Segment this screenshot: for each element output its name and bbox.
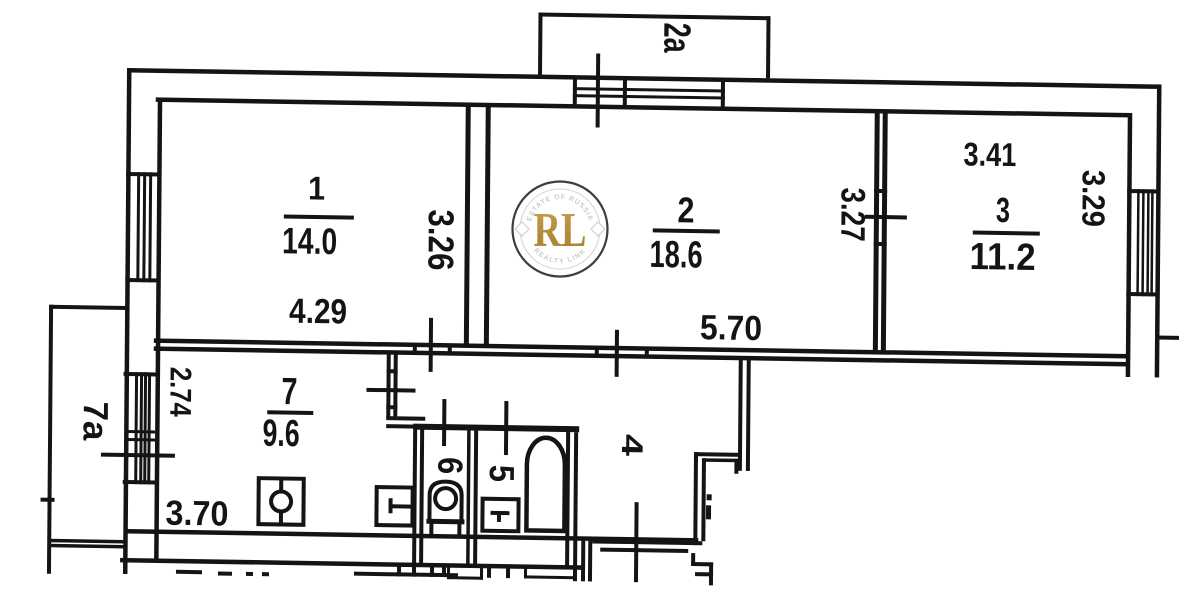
svg-text:3.41: 3.41: [963, 135, 1016, 173]
svg-text:2.74: 2.74: [163, 367, 196, 418]
svg-text:6: 6: [430, 457, 469, 475]
svg-text:9.6: 9.6: [262, 413, 299, 456]
svg-text:2: 2: [677, 189, 694, 230]
svg-text:5: 5: [482, 465, 521, 483]
svg-text:2a: 2a: [655, 22, 697, 53]
svg-text:5.70: 5.70: [700, 308, 762, 348]
svg-text:11.2: 11.2: [969, 236, 1035, 279]
svg-text:3.29: 3.29: [1075, 170, 1111, 228]
svg-text:3.70: 3.70: [165, 494, 228, 534]
svg-text:3.27: 3.27: [833, 187, 871, 242]
svg-text:RL: RL: [534, 202, 587, 257]
svg-text:1: 1: [308, 169, 325, 206]
svg-text:18.6: 18.6: [649, 234, 702, 277]
svg-text:7a: 7a: [76, 401, 115, 441]
svg-text:3: 3: [996, 191, 1010, 230]
svg-text:14.0: 14.0: [282, 220, 337, 262]
svg-text:3.26: 3.26: [420, 209, 461, 271]
svg-text:4.29: 4.29: [289, 292, 347, 332]
svg-text:4: 4: [615, 434, 648, 457]
svg-text:7: 7: [281, 371, 297, 413]
